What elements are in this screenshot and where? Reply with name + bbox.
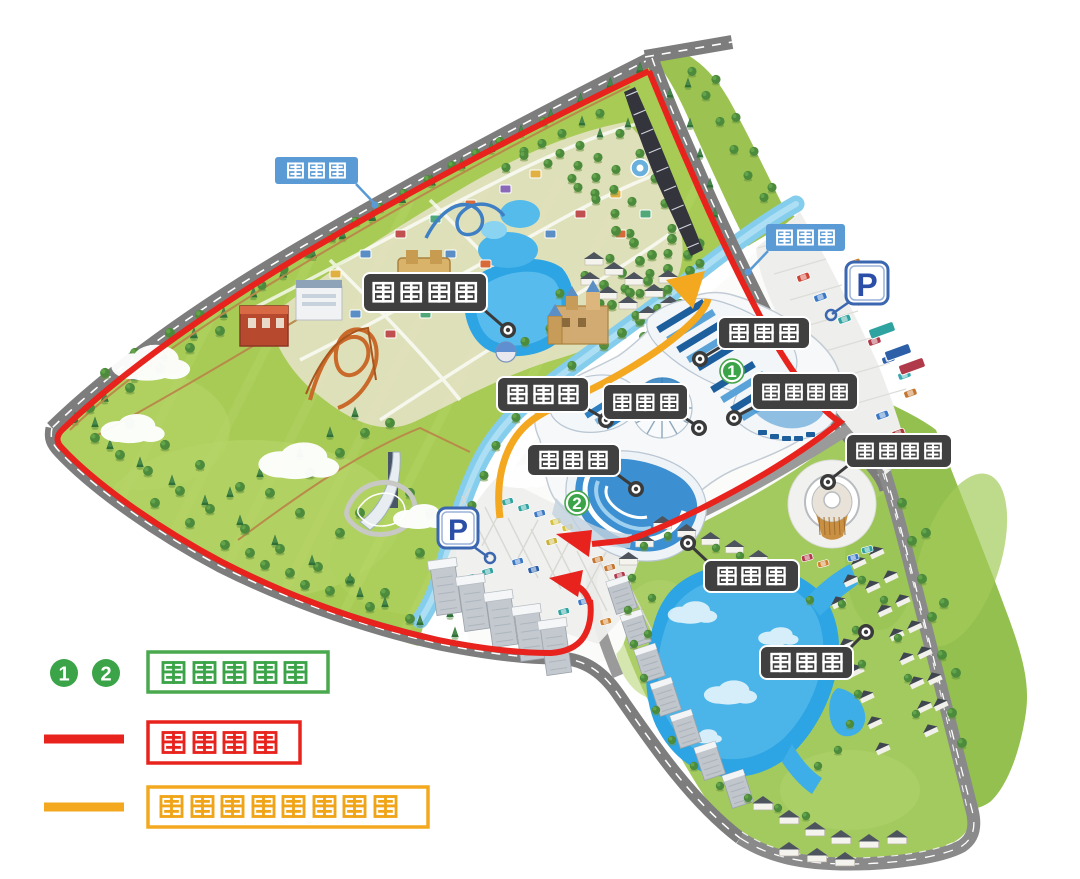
svg-text:P: P (448, 514, 468, 547)
svg-text:2: 2 (100, 663, 111, 685)
svg-text:1: 1 (58, 663, 69, 685)
svg-text:1: 1 (727, 362, 736, 381)
svg-text:2: 2 (572, 494, 581, 513)
svg-text:P: P (856, 267, 877, 303)
